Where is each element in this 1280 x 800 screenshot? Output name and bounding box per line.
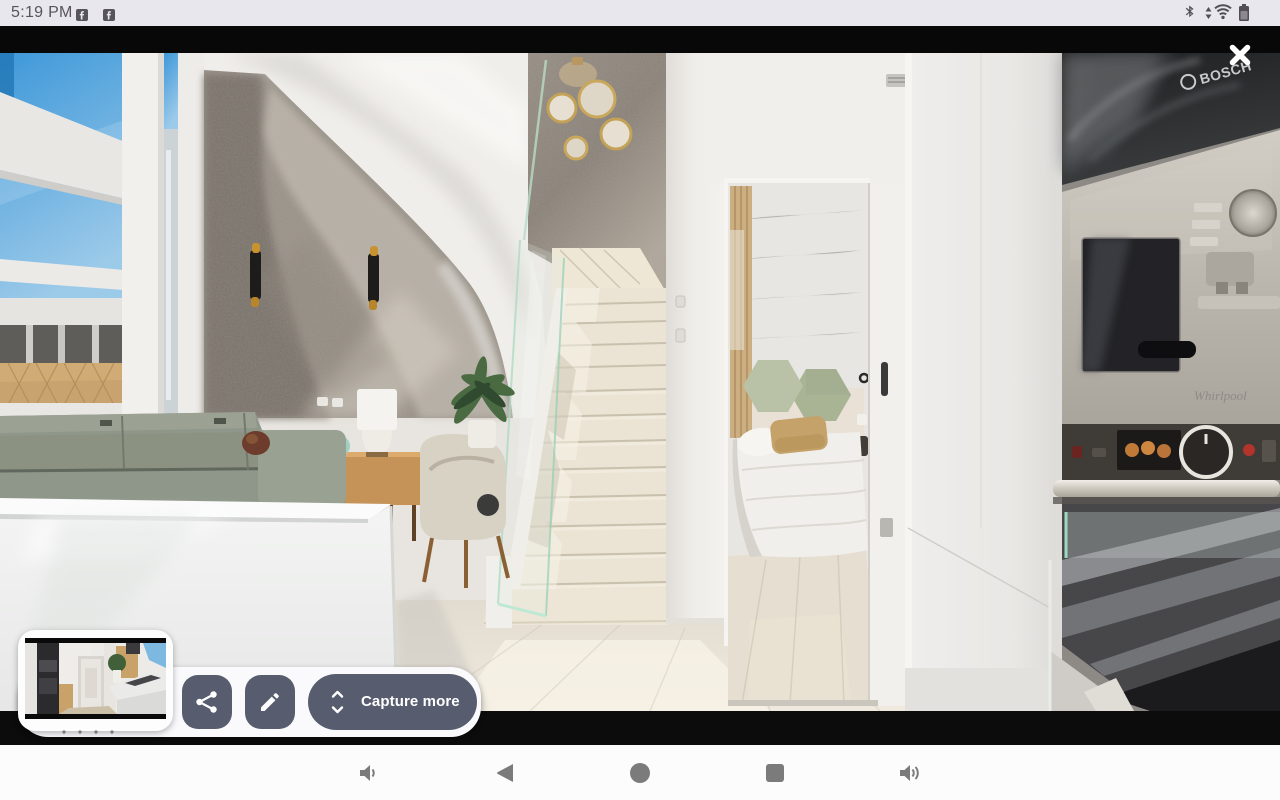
svg-text:Whirlpool: Whirlpool: [1194, 388, 1247, 403]
